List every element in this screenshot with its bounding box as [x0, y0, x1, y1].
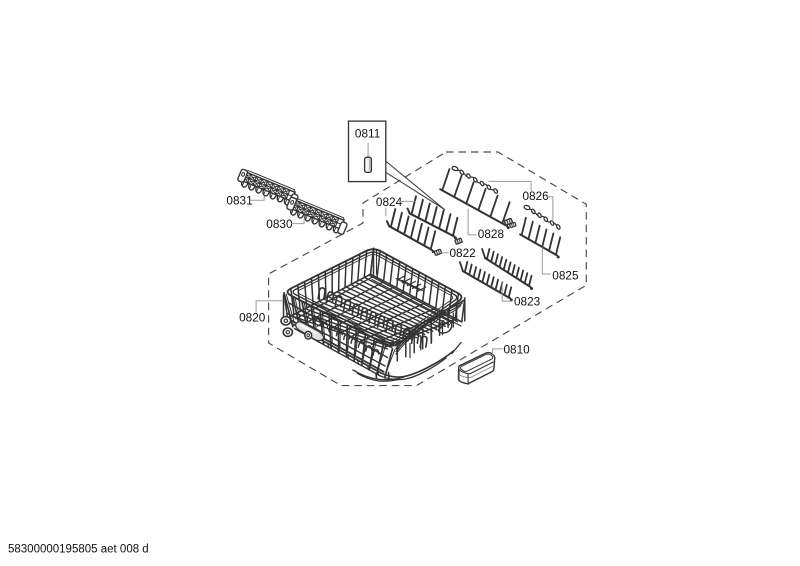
svg-text:0825: 0825 [552, 268, 579, 282]
svg-text:0823: 0823 [514, 294, 541, 308]
svg-text:0831: 0831 [226, 194, 252, 208]
svg-text:58300000195805 aet 008 d: 58300000195805 aet 008 d [8, 544, 149, 556]
svg-text:0822: 0822 [450, 246, 476, 260]
svg-text:0810: 0810 [504, 343, 531, 357]
svg-text:0811: 0811 [355, 126, 380, 140]
svg-text:0820: 0820 [239, 310, 266, 324]
svg-text:0826: 0826 [523, 189, 550, 203]
svg-text:0824: 0824 [376, 195, 403, 209]
svg-text:0830: 0830 [266, 217, 293, 231]
svg-text:0828: 0828 [478, 227, 505, 241]
